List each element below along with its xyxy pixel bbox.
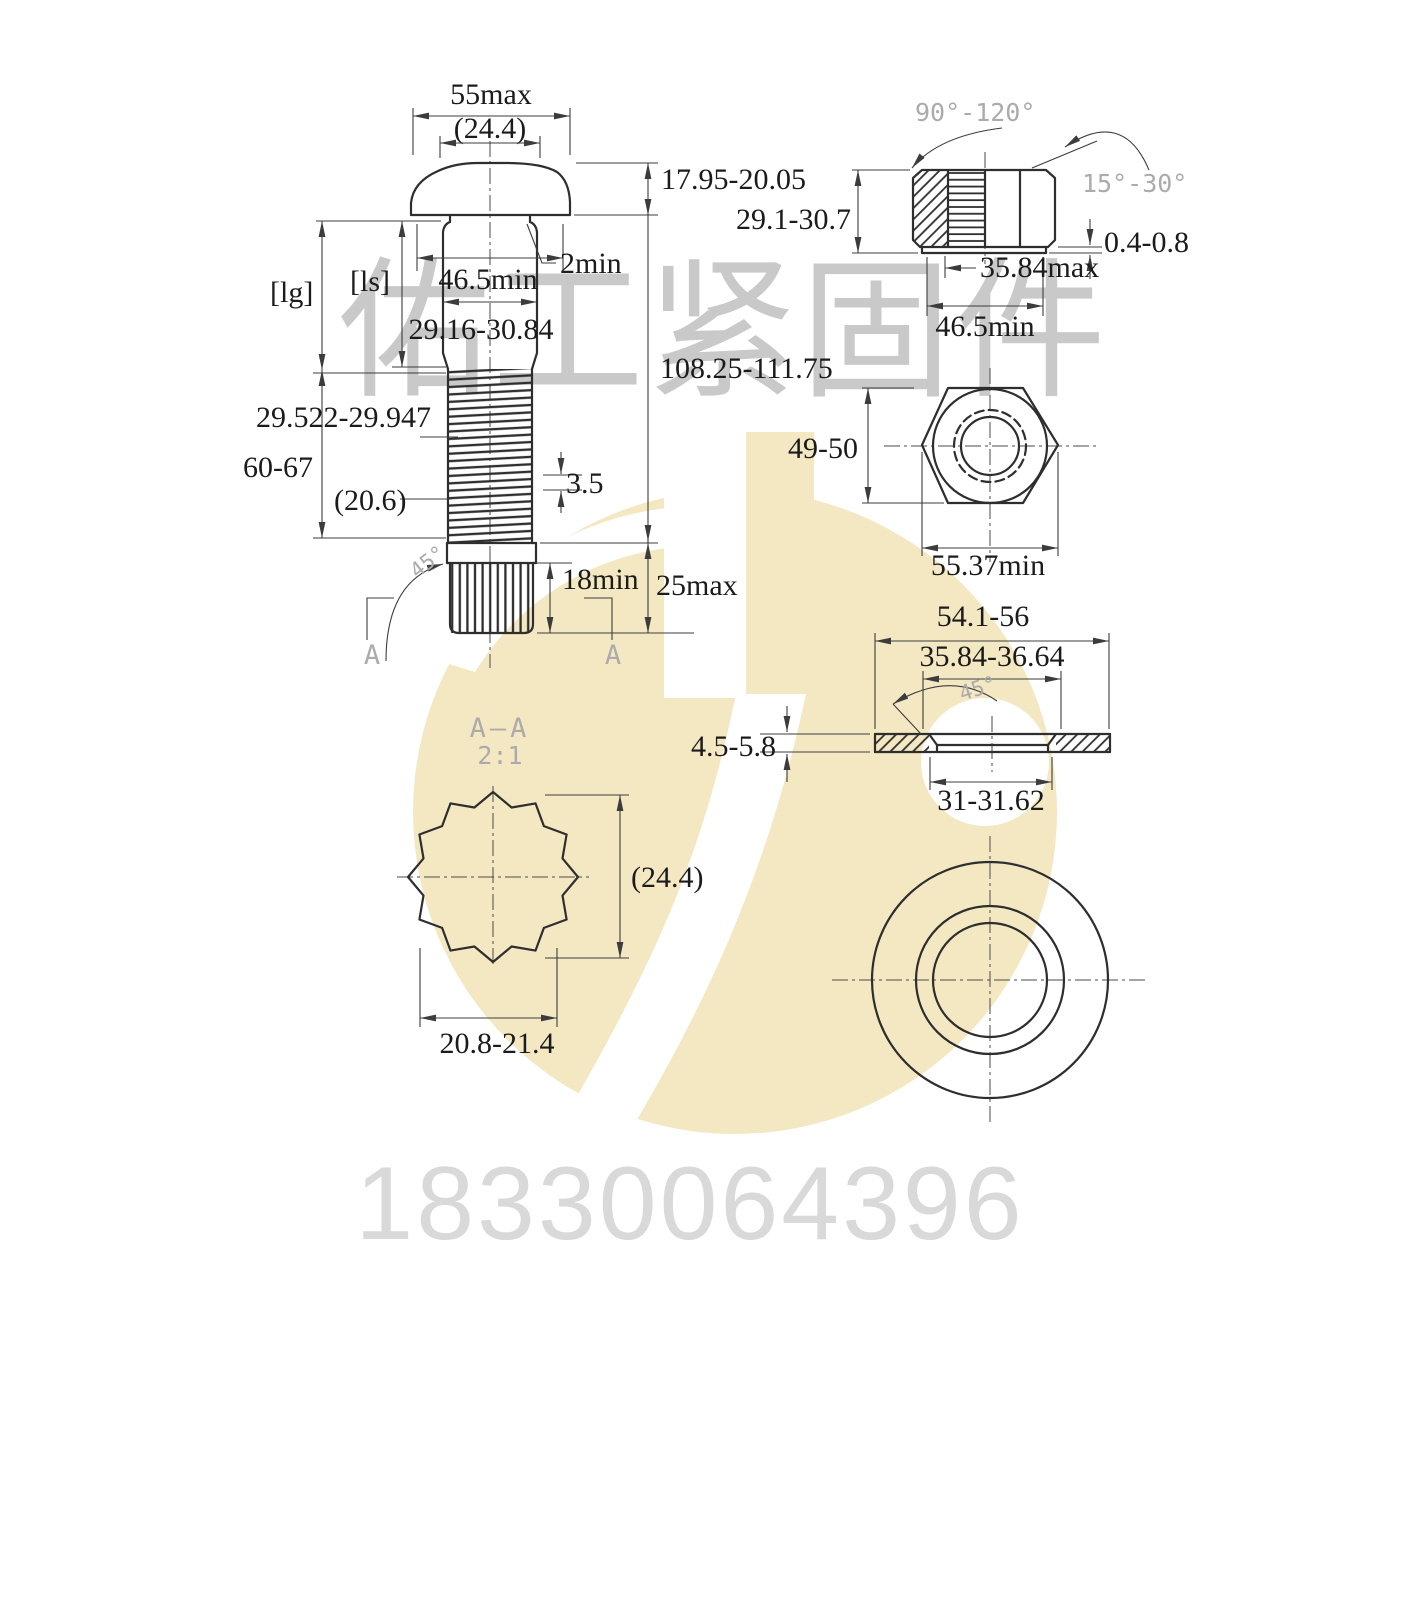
dim-nut-across-corners: 55.37min [931, 549, 1045, 582]
dim-bolt-head-flat: (24.4) [454, 112, 526, 145]
dim-bolt-pitch-dia: 29.522-29.947 [256, 401, 431, 434]
dim-bolt-shank-len: [ls] [350, 265, 390, 298]
spline-section-dimensions [420, 795, 629, 1027]
dim-bolt-thread-ref: (20.6) [334, 484, 406, 517]
washer-section-view [875, 716, 1110, 772]
dim-washer-chamfer-angle: 45° [956, 671, 999, 706]
dim-bolt-total-len: 108.25-111.75 [660, 352, 833, 385]
dim-bolt-thread-len: 60-67 [243, 451, 313, 484]
nut-side-dimensions [852, 128, 1149, 316]
dim-nut-chamfer-angle: 15°-30° [1082, 169, 1187, 198]
washer-plan-view [832, 836, 1148, 1124]
dim-bolt-head-width: 55max [450, 78, 532, 111]
spline-section-view [397, 786, 589, 968]
section-mark-right: A [605, 640, 621, 671]
dim-section-height-ref: (24.4) [631, 861, 703, 894]
drawing-canvas: 佑工紧固件 18330064396 [0, 0, 1416, 1600]
dim-bolt-tip-len: 25max [656, 569, 738, 602]
dim-bolt-body-dia: 29.16-30.84 [409, 313, 554, 346]
dim-nut-washer-face-dia: 35.84max [980, 251, 1099, 284]
dim-nut-height: 29.1-30.7 [736, 203, 851, 236]
section-mark-left: A [364, 640, 380, 671]
dim-nut-bearing-dia: 46.5min [935, 310, 1034, 343]
dim-bolt-spline-min-len: 18min [562, 563, 639, 596]
dim-bolt-head-height: 17.95-20.05 [661, 163, 806, 196]
dim-bolt-fillet: 2min [560, 247, 622, 280]
dim-washer-hole-dia: 31-31.62 [937, 784, 1045, 817]
dimension-labels: 55max (24.4) 17.95-20.05 46.5min 2min 29… [243, 78, 1189, 1060]
dim-nut-washer-face-height: 0.4-0.8 [1104, 226, 1189, 259]
dim-nut-across-flats: 49-50 [788, 432, 858, 465]
dim-washer-outer-dia: 54.1-56 [937, 600, 1030, 633]
dim-bolt-grip-len: [lg] [270, 276, 313, 309]
nut-front-view [884, 368, 1096, 562]
dim-bolt-bearing-dia: 46.5min [438, 263, 537, 296]
technical-drawing: 55max (24.4) 17.95-20.05 46.5min 2min 29… [0, 0, 1416, 1600]
nut-side-view [913, 152, 1055, 264]
dim-washer-thickness: 4.5-5.8 [691, 730, 776, 763]
bolt-front-view [411, 141, 570, 668]
dim-bolt-pitch: 3.5 [566, 467, 604, 500]
dim-section-spline-dia: 20.8-21.4 [440, 1027, 555, 1060]
section-title: A—A [470, 713, 531, 744]
section-scale: 2:1 [477, 741, 522, 770]
dim-washer-recess-dia: 35.84-36.64 [920, 640, 1065, 673]
nut-front-dimensions [862, 388, 1058, 556]
dim-bolt-break-angle: 45° [405, 541, 450, 583]
dim-nut-crown-angle: 90°-120° [915, 98, 1035, 127]
